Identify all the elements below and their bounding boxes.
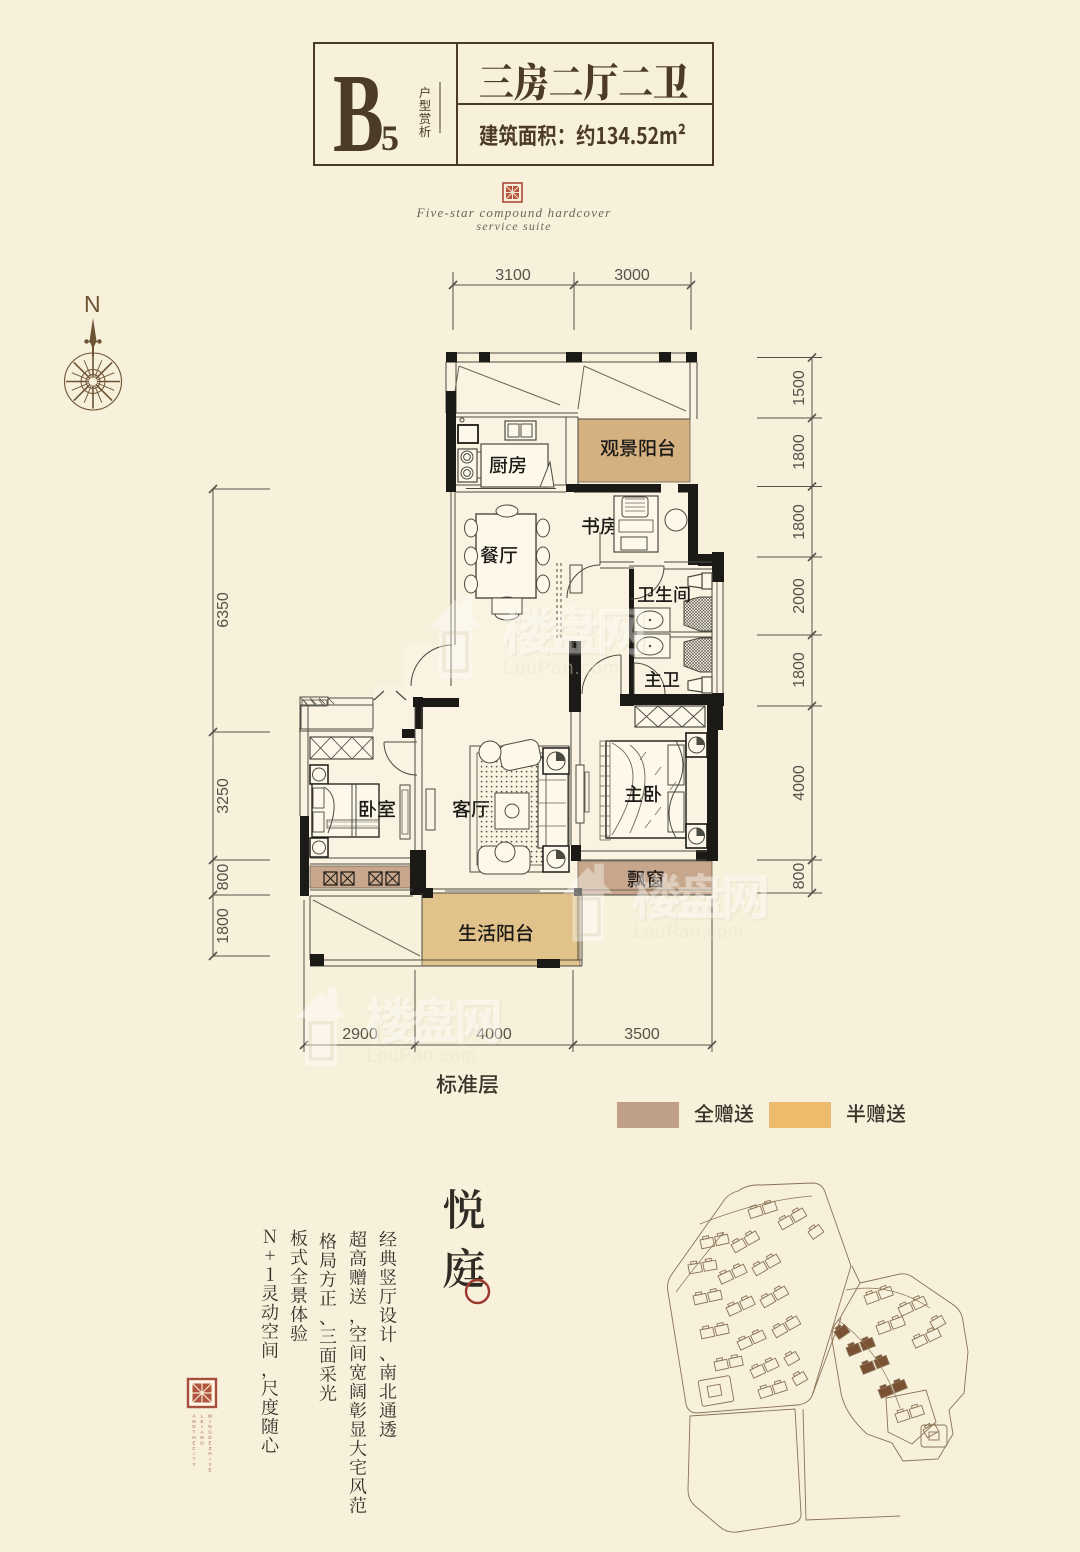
svg-text:LouPan.com: LouPan.com	[633, 922, 744, 942]
svg-text:LouPan.com: LouPan.com	[503, 658, 620, 679]
svg-text:Five-star compound hardcover: Five-star compound hardcover	[416, 205, 612, 220]
svg-text:3250: 3250	[215, 778, 232, 814]
svg-text:5: 5	[381, 118, 399, 158]
svg-text:3000: 3000	[614, 267, 650, 284]
svg-text:1800: 1800	[791, 652, 808, 688]
svg-text:ANDTHECITY: ANDTHECITY	[192, 1413, 196, 1467]
svg-text:4000: 4000	[791, 765, 808, 801]
svg-text:6350: 6350	[215, 592, 232, 628]
svg-text:2000: 2000	[791, 578, 808, 614]
svg-text:LEIANG: LEIANG	[200, 1413, 204, 1445]
svg-text:N: N	[84, 291, 101, 317]
svg-text:service suite: service suite	[476, 219, 551, 233]
svg-text:800: 800	[215, 864, 232, 891]
svg-text:1800: 1800	[215, 908, 232, 944]
svg-text:MINGDEZHIYE: MINGDEZHIYE	[208, 1413, 212, 1472]
svg-text:3100: 3100	[495, 267, 531, 284]
svg-text:LouPan.com: LouPan.com	[366, 1046, 477, 1066]
svg-text:1800: 1800	[791, 504, 808, 540]
svg-text:3500: 3500	[624, 1026, 660, 1043]
svg-text:1800: 1800	[791, 434, 808, 470]
svg-text:800: 800	[791, 863, 808, 890]
svg-text:B: B	[333, 52, 384, 176]
svg-text:1500: 1500	[791, 370, 808, 406]
